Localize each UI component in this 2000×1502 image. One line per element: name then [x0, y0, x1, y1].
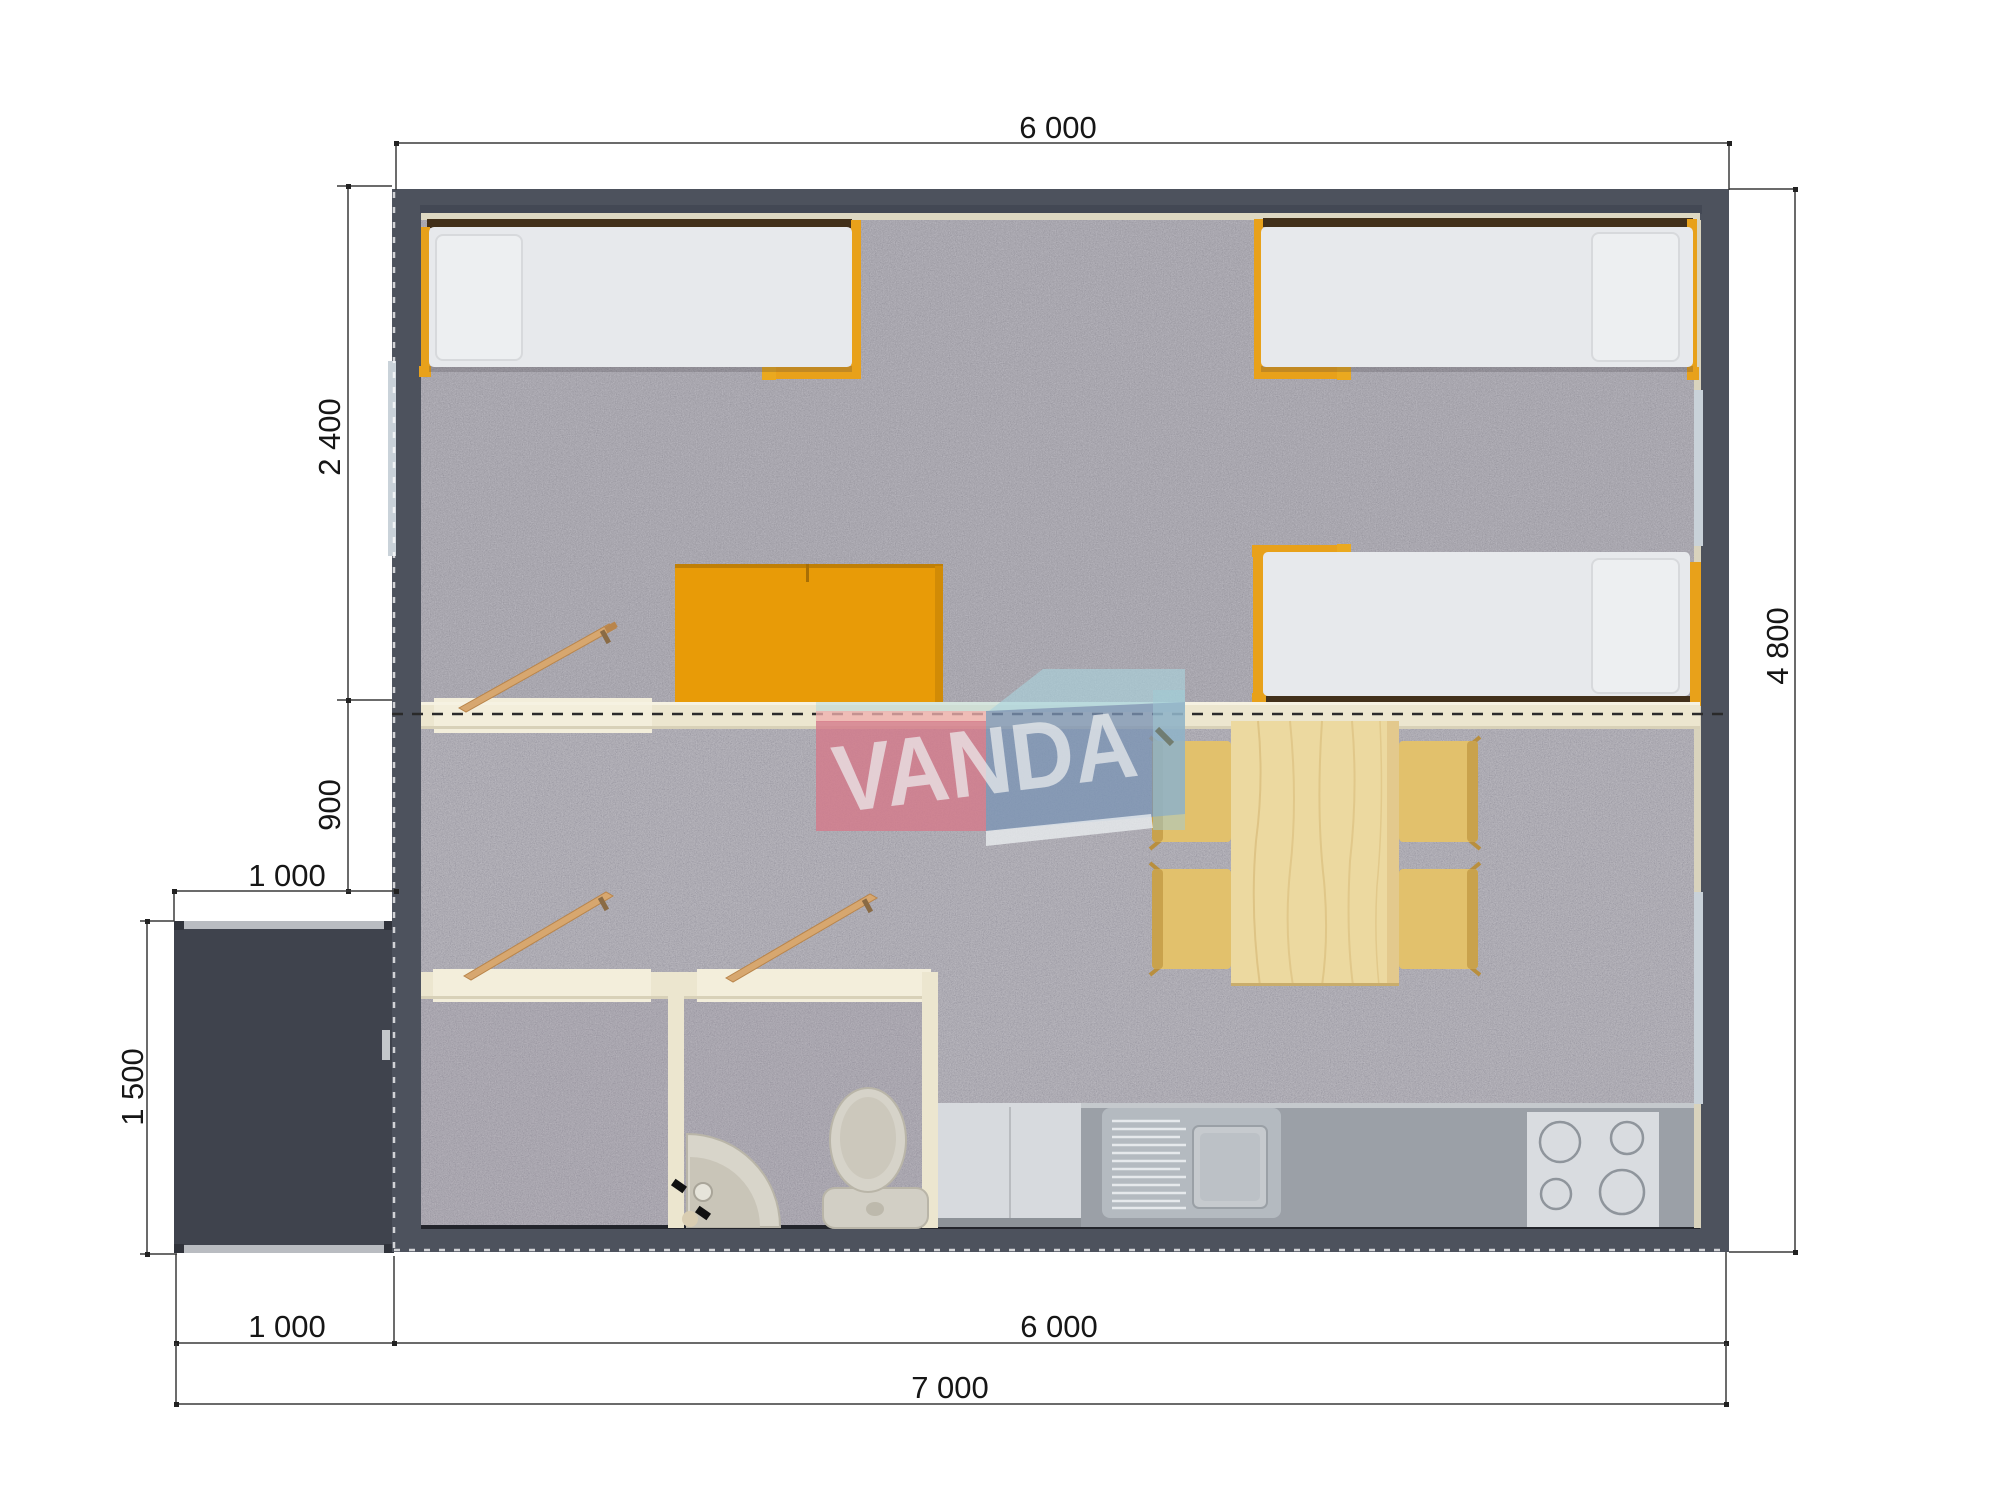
svg-text:6 000: 6 000	[1020, 1309, 1098, 1344]
svg-text:2 400: 2 400	[312, 398, 347, 476]
svg-text:7 000: 7 000	[911, 1370, 989, 1405]
svg-text:1 500: 1 500	[115, 1048, 150, 1126]
svg-text:1 000: 1 000	[248, 1309, 326, 1344]
svg-text:900: 900	[312, 779, 347, 831]
svg-text:4 800: 4 800	[1760, 607, 1795, 685]
svg-text:6 000: 6 000	[1019, 110, 1097, 145]
svg-text:1 000: 1 000	[248, 858, 326, 893]
